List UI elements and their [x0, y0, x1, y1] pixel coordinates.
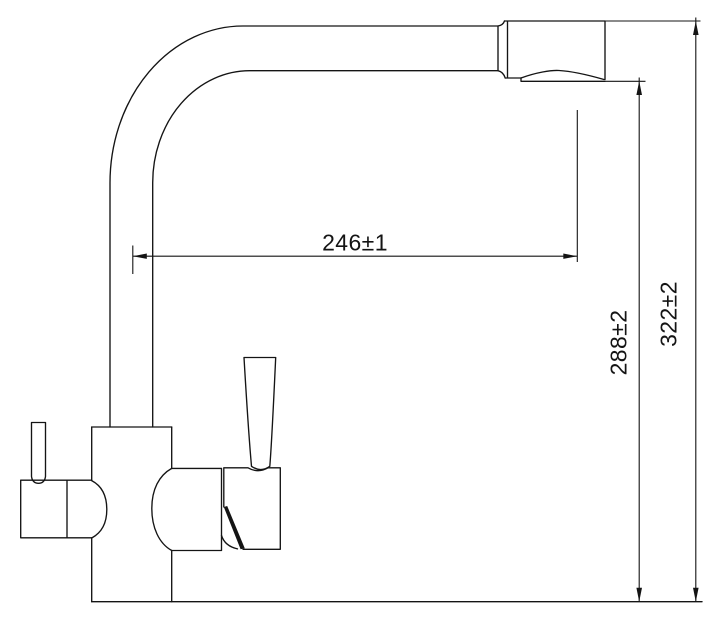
- faucet-outline: [21, 21, 702, 602]
- right-handle-wedge-line: [224, 506, 245, 549]
- aerator-wave-line: [521, 70, 604, 79]
- dim-288-label: 288±2: [606, 310, 632, 376]
- left-connector-bulge: [92, 481, 107, 538]
- aerator-plate: [521, 78, 605, 81]
- right-valve-bulge: [152, 468, 172, 550]
- right-valve-body: [172, 468, 222, 550]
- dim-246-arrow-left: [133, 254, 147, 259]
- dimension-246: 246±1: [133, 110, 578, 274]
- dim-322-label: 322±2: [656, 281, 682, 347]
- right-handle-arc-detail: [222, 536, 238, 549]
- dim-288-arrow-up: [636, 81, 642, 95]
- dim-322-arrow-down: [693, 588, 699, 602]
- dim-322-arrow-up: [693, 21, 699, 35]
- dim-246-label: 246±1: [322, 230, 388, 256]
- drawing-svg: 246±1 288±2 322±2: [0, 0, 720, 634]
- dim-246-arrow-right: [563, 254, 577, 259]
- faucet-technical-drawing: 246±1 288±2 322±2: [0, 0, 720, 634]
- spout-collar: [498, 21, 508, 78]
- left-handle-lever: [32, 423, 46, 484]
- right-handle-lever: [244, 358, 276, 470]
- spout-outer-profile: [110, 26, 498, 427]
- right-handle-base: [224, 468, 280, 550]
- left-handle-block: [21, 480, 92, 538]
- dimension-288: 288±2: [605, 78, 646, 602]
- dim-288-arrow-down: [636, 588, 642, 602]
